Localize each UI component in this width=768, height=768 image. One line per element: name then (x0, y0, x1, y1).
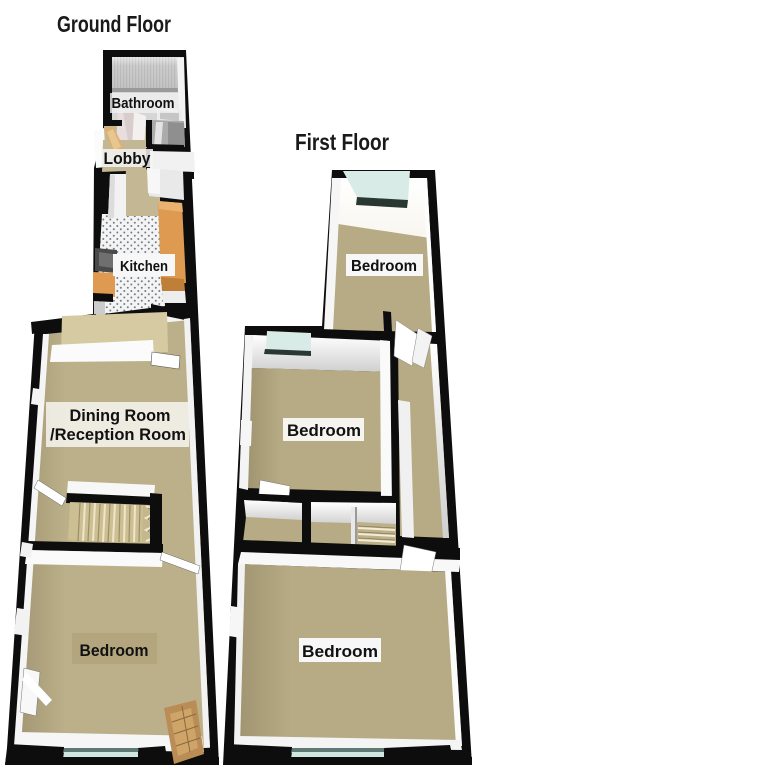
svg-text:Ground Floor: Ground Floor (57, 11, 171, 37)
svg-text:Bedroom: Bedroom (351, 258, 417, 275)
svg-text:Bathroom: Bathroom (112, 96, 175, 112)
svg-text:Bedroom: Bedroom (302, 642, 378, 661)
svg-text:Bedroom: Bedroom (80, 642, 149, 660)
svg-text:/Reception Room: /Reception Room (50, 426, 186, 444)
svg-text:Bedroom: Bedroom (287, 421, 361, 440)
svg-text:Kitchen: Kitchen (120, 258, 168, 275)
svg-text:First Floor: First Floor (295, 129, 389, 155)
svg-text:Dining Room: Dining Room (70, 407, 171, 425)
svg-text:Lobby: Lobby (104, 149, 151, 168)
